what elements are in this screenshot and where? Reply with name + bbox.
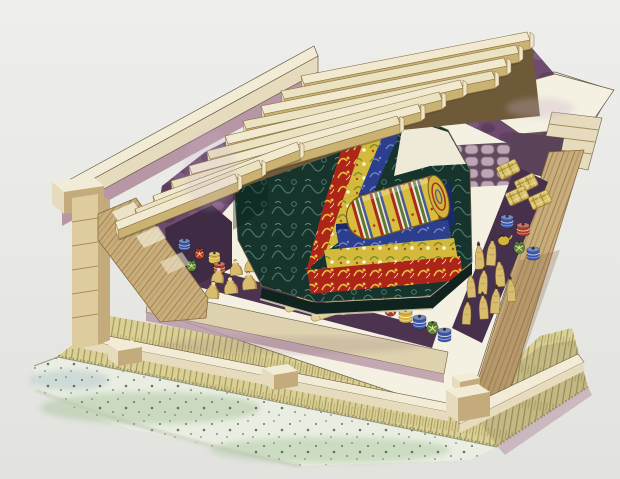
floor-block bbox=[108, 340, 142, 366]
beam-end-face bbox=[530, 32, 534, 49]
beam-end-face bbox=[400, 116, 404, 133]
painted-jar bbox=[501, 215, 513, 228]
beam-end-face bbox=[495, 71, 499, 88]
painted-jar bbox=[427, 321, 439, 334]
beam-end-face bbox=[262, 160, 266, 177]
painted-pot bbox=[179, 239, 190, 251]
beam-end-face bbox=[519, 45, 523, 62]
illustration-stage bbox=[0, 0, 620, 479]
painted-jar bbox=[438, 328, 451, 342]
painted-jar bbox=[514, 241, 525, 254]
beam-end-face bbox=[238, 174, 242, 191]
beam-end-face bbox=[442, 92, 446, 109]
painted-jar bbox=[517, 223, 529, 236]
beam-end-face bbox=[463, 80, 467, 97]
painted-jar bbox=[413, 315, 426, 329]
beam-end-face bbox=[507, 58, 511, 75]
painted-pot bbox=[195, 248, 205, 259]
painted-jar bbox=[527, 247, 539, 260]
tomb-cutaway-illustration bbox=[0, 0, 620, 479]
floor-block bbox=[262, 364, 298, 390]
beam-end-face bbox=[421, 104, 425, 121]
beam-end-face bbox=[300, 142, 304, 159]
